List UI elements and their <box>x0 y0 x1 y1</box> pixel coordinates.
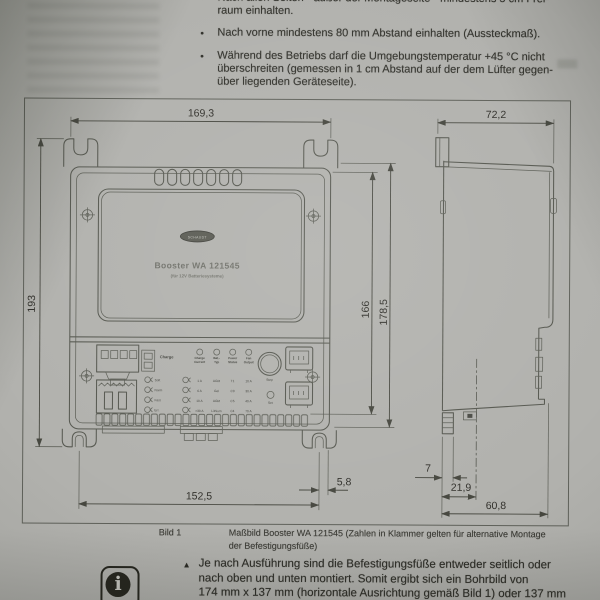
dim-side-bottom-depth: 60,8 <box>486 500 507 512</box>
cell: C5 <box>230 399 234 403</box>
mounting-foot-top-left <box>64 139 98 167</box>
output-socket <box>285 382 312 408</box>
info-circle: i <box>106 572 131 597</box>
caption-line: der Befestigungsfüße) <box>229 539 546 553</box>
cell: C3 <box>230 389 234 393</box>
screw-icon <box>80 207 95 222</box>
mounting-foot-top-right <box>304 140 338 168</box>
mounting-foot-bottom-left <box>62 429 96 447</box>
dim-side-foot-width: 7 <box>425 463 431 475</box>
status-leds: Soft Norm Fast Err. <box>145 377 191 413</box>
brand-logo-text: SCHAUDT <box>188 235 207 239</box>
cell: Gel <box>214 389 219 393</box>
setting-table: 1 A AGM T1 10 A 6 A Gel C3 30 A 10 A AGM… <box>195 379 252 413</box>
led-header: Status <box>228 360 238 364</box>
dim-front-width: 169,3 <box>188 107 214 119</box>
note-line: 174 mm x 137 mm (horizontale Ausrichtung… <box>198 586 566 600</box>
led-label: Err. <box>154 408 159 412</box>
note-line: Je nach Ausführung sind die Befestigungs… <box>199 556 567 573</box>
figure-label: Bild 1 <box>159 526 229 551</box>
dim-foot-spacing: 152,5 <box>186 490 212 502</box>
side-foot-top <box>436 138 449 167</box>
header-leds: Charge Current Bat.- Typ Power Status Fa… <box>194 349 253 364</box>
side-front-edge <box>442 161 443 411</box>
screw-icon <box>79 368 94 383</box>
cell: 30 A <box>245 389 252 393</box>
cell: 10 A <box>196 399 203 403</box>
aux-led-label: Set <box>268 401 273 405</box>
dim-inner-height: 166 <box>360 301 372 319</box>
charge-label: Charge <box>160 354 175 359</box>
triangle-marker-icon: ▲ <box>182 556 198 600</box>
technical-drawing: SCHAUDT Booster WA 121545 (für 12V Batte… <box>0 0 600 600</box>
dim-outer-height: 178,5 <box>378 299 390 325</box>
side-foot-bottom <box>442 413 453 434</box>
model-label: Booster WA 121545 <box>154 260 239 270</box>
cell: 40 A <box>245 399 252 403</box>
cell: 6 A <box>197 389 203 393</box>
front-view: SCHAUDT Booster WA 121545 (für 12V Batte… <box>62 139 338 448</box>
dim-foot-edge-offset: 5,8 <box>337 476 352 488</box>
selector-button <box>258 352 281 375</box>
screw-icon <box>306 209 321 224</box>
led-label: Soft <box>155 378 161 382</box>
center-line <box>476 359 477 501</box>
manual-page-photo: • Nach allen Seiten - außer der Montages… <box>0 0 600 600</box>
cell: >30 A <box>195 409 204 413</box>
mounting-foot-bottom-right <box>302 430 336 448</box>
cell: AGM <box>213 379 221 383</box>
side-bottom-edge <box>442 399 544 412</box>
dim-side-depth: 72,2 <box>486 109 507 121</box>
bottom-note: ▲ Je nach Ausführung sind die Befestigun… <box>182 556 587 600</box>
side-view <box>434 138 557 502</box>
bottom-note-text: Je nach Ausführung sind die Befestigungs… <box>198 556 566 600</box>
led-label: Norm <box>155 388 163 392</box>
terminal-strip <box>95 413 308 427</box>
vent-slots <box>155 169 242 185</box>
cell: 1 A <box>197 379 203 383</box>
caption-text: Maßbild Booster WA 121545 (Zahlen in Kla… <box>229 527 546 554</box>
cell: 10 A <box>245 379 252 383</box>
led-header: Output <box>244 360 254 364</box>
dim-side-foot-center: 21,9 <box>451 482 472 494</box>
dim-overall-height: 193 <box>26 295 38 313</box>
aux-led <box>267 391 274 398</box>
cell: C4 <box>230 409 234 413</box>
side-tab-mark <box>467 414 472 418</box>
figure-caption: Bild 1 Maßbild Booster WA 121545 (Zahlen… <box>159 526 546 553</box>
led-header: Typ <box>214 360 219 364</box>
cover-seam <box>70 337 330 343</box>
led-header: Current <box>194 360 205 364</box>
info-icon: i <box>100 566 139 600</box>
cell: AGM <box>213 399 221 403</box>
cell: Lithium <box>211 409 222 413</box>
control-panel: Charge Soft Norm Fast Err. <box>95 345 312 441</box>
output-socket <box>286 347 313 373</box>
info-glyph: i <box>115 575 122 594</box>
led-label: Fast <box>154 398 160 402</box>
model-subtitle: (für 12V Batteriesysteme) <box>171 273 225 278</box>
label-recess <box>98 189 305 322</box>
button-label: Step <box>266 378 273 382</box>
page-content: • Nach allen Seiten - außer der Montages… <box>0 0 600 600</box>
cell: 70 A <box>245 409 252 413</box>
caption-line: Maßbild Booster WA 121545 (Zahlen in Kla… <box>229 527 546 541</box>
cell: T1 <box>231 379 235 383</box>
